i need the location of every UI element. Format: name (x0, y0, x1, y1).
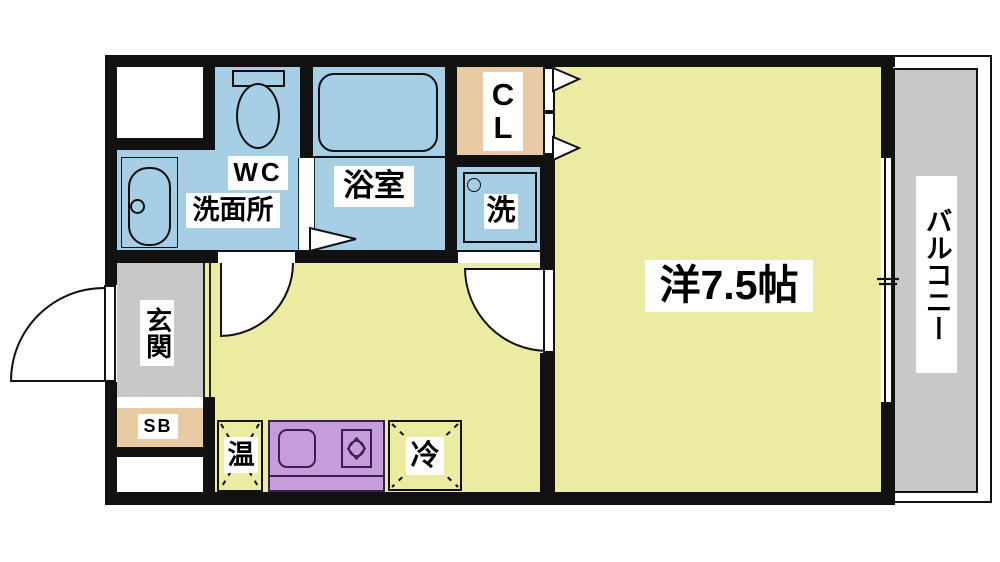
western-room-label: 洋7.5帖 (645, 260, 813, 312)
washroom-doorway (218, 250, 295, 263)
entrance-step-strip (117, 397, 203, 408)
pipe-space-top-left (117, 67, 203, 138)
window-glass-line (891, 158, 893, 402)
balcony-label: バルコニー (916, 176, 957, 373)
window-glass-line (884, 158, 886, 402)
wall-bottom (105, 492, 895, 505)
wall-wc-bathroom (300, 67, 313, 158)
wall-mid-b (293, 250, 458, 263)
bathroom-door-strip (298, 158, 315, 250)
entrance-door-arc (10, 287, 104, 382)
water-heater-space-label: 温 (224, 437, 258, 473)
floor-plan: WC 洗面所 浴室 洗 C L 洋7.5帖 バルコニー 玄関 SB 温 冷 (0, 0, 1000, 562)
washbasin-faucet-icon (130, 199, 145, 214)
washing-machine-tap-icon (467, 178, 481, 192)
wall-void-right (203, 67, 215, 150)
wall-top (105, 55, 895, 67)
bathroom-label: 浴室 (334, 166, 414, 207)
closet-door-panel (543, 67, 555, 112)
wall-void-bottom (105, 138, 215, 150)
entrance-label: 玄関 (140, 300, 174, 366)
void-bottom-left (117, 457, 203, 492)
wall-closet-bottom (445, 155, 555, 167)
wall-right-upper (881, 55, 893, 158)
wall-kitchen-room-lower (540, 353, 555, 492)
wall-mid-a (105, 250, 220, 263)
refrigerator-space-label: 冷 (406, 437, 444, 475)
shoe-box-label: SB (138, 414, 178, 439)
closet-label-char: C (492, 79, 514, 112)
wc-label: WC (228, 156, 288, 190)
closet-label: C L (483, 72, 523, 151)
wall-entrance-kitchen-lower (203, 397, 215, 492)
entrance-door-leaf (104, 285, 116, 382)
washroom-label: 洗面所 (186, 193, 280, 228)
entrance-step-edge-line (209, 263, 211, 397)
western-room-door-leaf (543, 268, 555, 353)
closet-door-panel (543, 112, 555, 155)
western-room-doorway (458, 250, 540, 263)
wall-left-lower (105, 382, 117, 505)
kitchen-sink (278, 429, 316, 468)
bathtub-platform-line (313, 156, 445, 158)
wall-shoebox-bottom (105, 447, 215, 457)
kitchen-burner (341, 429, 372, 468)
entrance-step-edge-line (203, 263, 205, 397)
wall-right-lower (881, 402, 893, 505)
kitchen-counter-front-line (270, 475, 383, 477)
bathtub (318, 73, 438, 152)
toilet-bowl (236, 83, 280, 149)
closet-label-char: L (494, 112, 513, 145)
wall-laundry-room (540, 165, 555, 268)
laundry-space-label: 洗 (484, 194, 518, 229)
